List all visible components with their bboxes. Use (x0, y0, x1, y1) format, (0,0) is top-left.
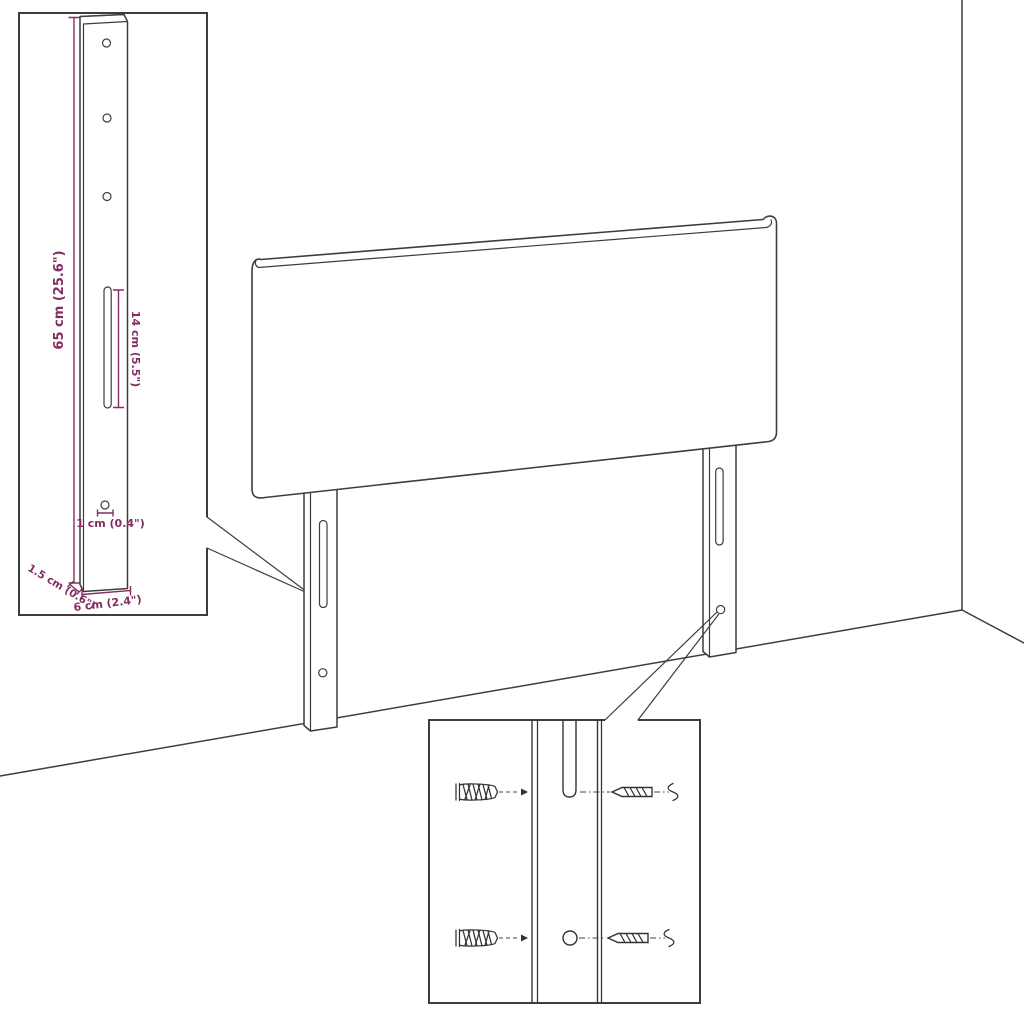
hardware-detail-inset (429, 613, 719, 1004)
hole-diameter-label: 1 cm (0.4") (76, 517, 145, 530)
headboard-panel (252, 216, 777, 498)
right-leg (703, 434, 736, 657)
hardware-callout-line-left (605, 613, 717, 721)
bracket-callout-line-top (207, 517, 303, 589)
hardware-callout-line-right (638, 615, 719, 721)
floor-line-right (962, 610, 1024, 643)
headboard-assembly-diagram: 65 cm (25.6") 14 cm (5.5") 1 cm (0.4") 1… (0, 0, 1024, 1024)
slot-length-label: 14 cm (5.5") (129, 311, 142, 387)
hardware-inset-box (429, 720, 700, 1003)
bracket-callout-line-bottom (207, 548, 303, 591)
diagram-svg: 65 cm (25.6") 14 cm (5.5") 1 cm (0.4") 1… (0, 0, 1024, 1024)
left-leg (304, 473, 337, 731)
bracket-height-label: 65 cm (25.6") (52, 250, 67, 349)
headboard-panel-face (252, 216, 777, 498)
